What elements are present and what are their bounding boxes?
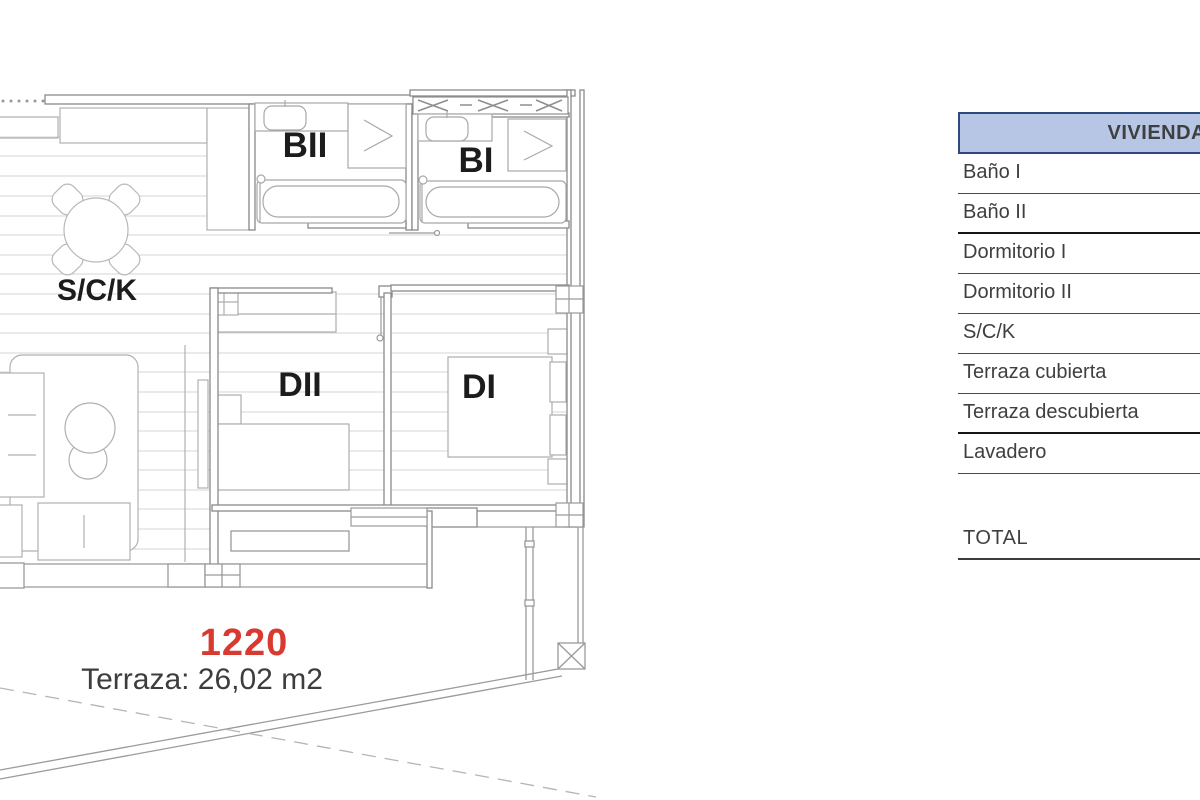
floor-plan: S/C/K BII BI DII DI 1220 Terraza: 26,02 … bbox=[0, 0, 600, 800]
table-spacer bbox=[958, 474, 1200, 520]
bed-single bbox=[216, 424, 349, 490]
table-total-row: TOTAL bbox=[958, 520, 1200, 560]
plot-boundary-dashed bbox=[0, 688, 596, 797]
table-row: Baño I bbox=[958, 154, 1200, 194]
table-header: VIVIENDA bbox=[958, 112, 1200, 154]
pillow bbox=[550, 362, 566, 402]
nightstand bbox=[548, 459, 568, 484]
shower bbox=[348, 104, 406, 168]
sofa bbox=[0, 373, 44, 497]
room-label-dii: DII bbox=[278, 366, 321, 404]
room-label-di: DI bbox=[462, 368, 496, 406]
area-table: VIVIENDA Baño I Baño II Dormitorio I Dor… bbox=[958, 112, 1200, 560]
screenshot: S/C/K BII BI DII DI 1220 Terraza: 26,02 … bbox=[0, 0, 1200, 800]
terrace-walls bbox=[0, 527, 585, 779]
round-table bbox=[64, 198, 128, 262]
unit-number: 1220 bbox=[200, 622, 289, 664]
room-label-bi: BI bbox=[459, 141, 494, 180]
shower bbox=[508, 119, 566, 171]
table-row: Dormitorio I bbox=[958, 234, 1200, 274]
table-row: Baño II bbox=[958, 194, 1200, 234]
table-row: Lavadero bbox=[958, 434, 1200, 474]
closet-door bbox=[198, 380, 208, 488]
pillow bbox=[216, 395, 241, 424]
table-row: S/C/K bbox=[958, 314, 1200, 354]
room-label-sck: S/C/K bbox=[57, 274, 137, 307]
bedroom-di-furniture bbox=[448, 329, 568, 484]
shaft-hatch bbox=[413, 97, 568, 114]
pillow bbox=[550, 415, 566, 455]
armchair bbox=[65, 403, 115, 453]
table-row: Dormitorio II bbox=[958, 274, 1200, 314]
table-row: Terraza descubierta bbox=[958, 394, 1200, 434]
room-label-bii: BII bbox=[283, 126, 328, 165]
terrace-area-label: Terraza: 26,02 m2 bbox=[81, 663, 323, 696]
sink bbox=[426, 117, 468, 141]
terrace-slider bbox=[351, 508, 427, 526]
table-header-label: VIVIENDA bbox=[1108, 122, 1200, 145]
dotted-line bbox=[2, 100, 45, 103]
dining-table-set bbox=[48, 180, 143, 278]
nightstand bbox=[548, 329, 568, 354]
table-row: Terraza cubierta bbox=[958, 354, 1200, 394]
